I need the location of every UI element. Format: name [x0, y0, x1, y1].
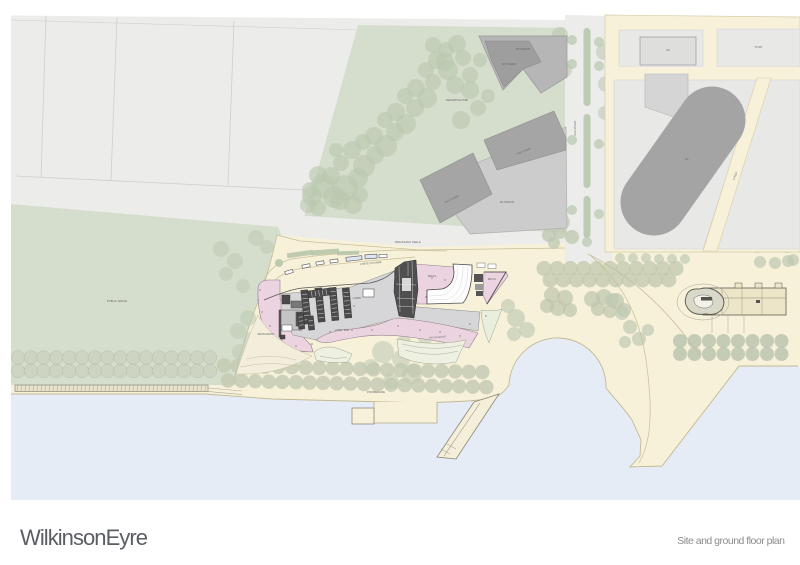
- svg-text:RETAIL: RETAIL: [488, 278, 497, 281]
- svg-text:PUBLIC SPACE: PUBLIC SPACE: [107, 299, 127, 303]
- svg-text:M4 PODIUM: M4 PODIUM: [500, 201, 514, 204]
- svg-text:LOBBY BAR: LOBBY BAR: [335, 329, 349, 332]
- svg-text:M5 TOWER: M5 TOWER: [502, 63, 516, 66]
- svg-text:BRAUGHING SWALE: BRAUGHING SWALE: [395, 240, 421, 244]
- svg-text:S1: S1: [685, 157, 689, 161]
- svg-text:T3 S8: T3 S8: [754, 45, 762, 49]
- svg-text:PROMENADE: PROMENADE: [367, 390, 385, 394]
- svg-text:MEANWHILE PARK: MEANWHILE PARK: [446, 99, 469, 102]
- svg-text:LOBBY: LOBBY: [353, 296, 362, 300]
- svg-text:M5 PODIUM: M5 PODIUM: [516, 48, 530, 51]
- svg-text:RETAIL: RETAIL: [428, 275, 437, 278]
- svg-text:RESTAURANT: RESTAURANT: [258, 333, 275, 336]
- svg-text:ALIE STREET: ALIE STREET: [574, 120, 577, 136]
- svg-text:S4: S4: [666, 48, 670, 52]
